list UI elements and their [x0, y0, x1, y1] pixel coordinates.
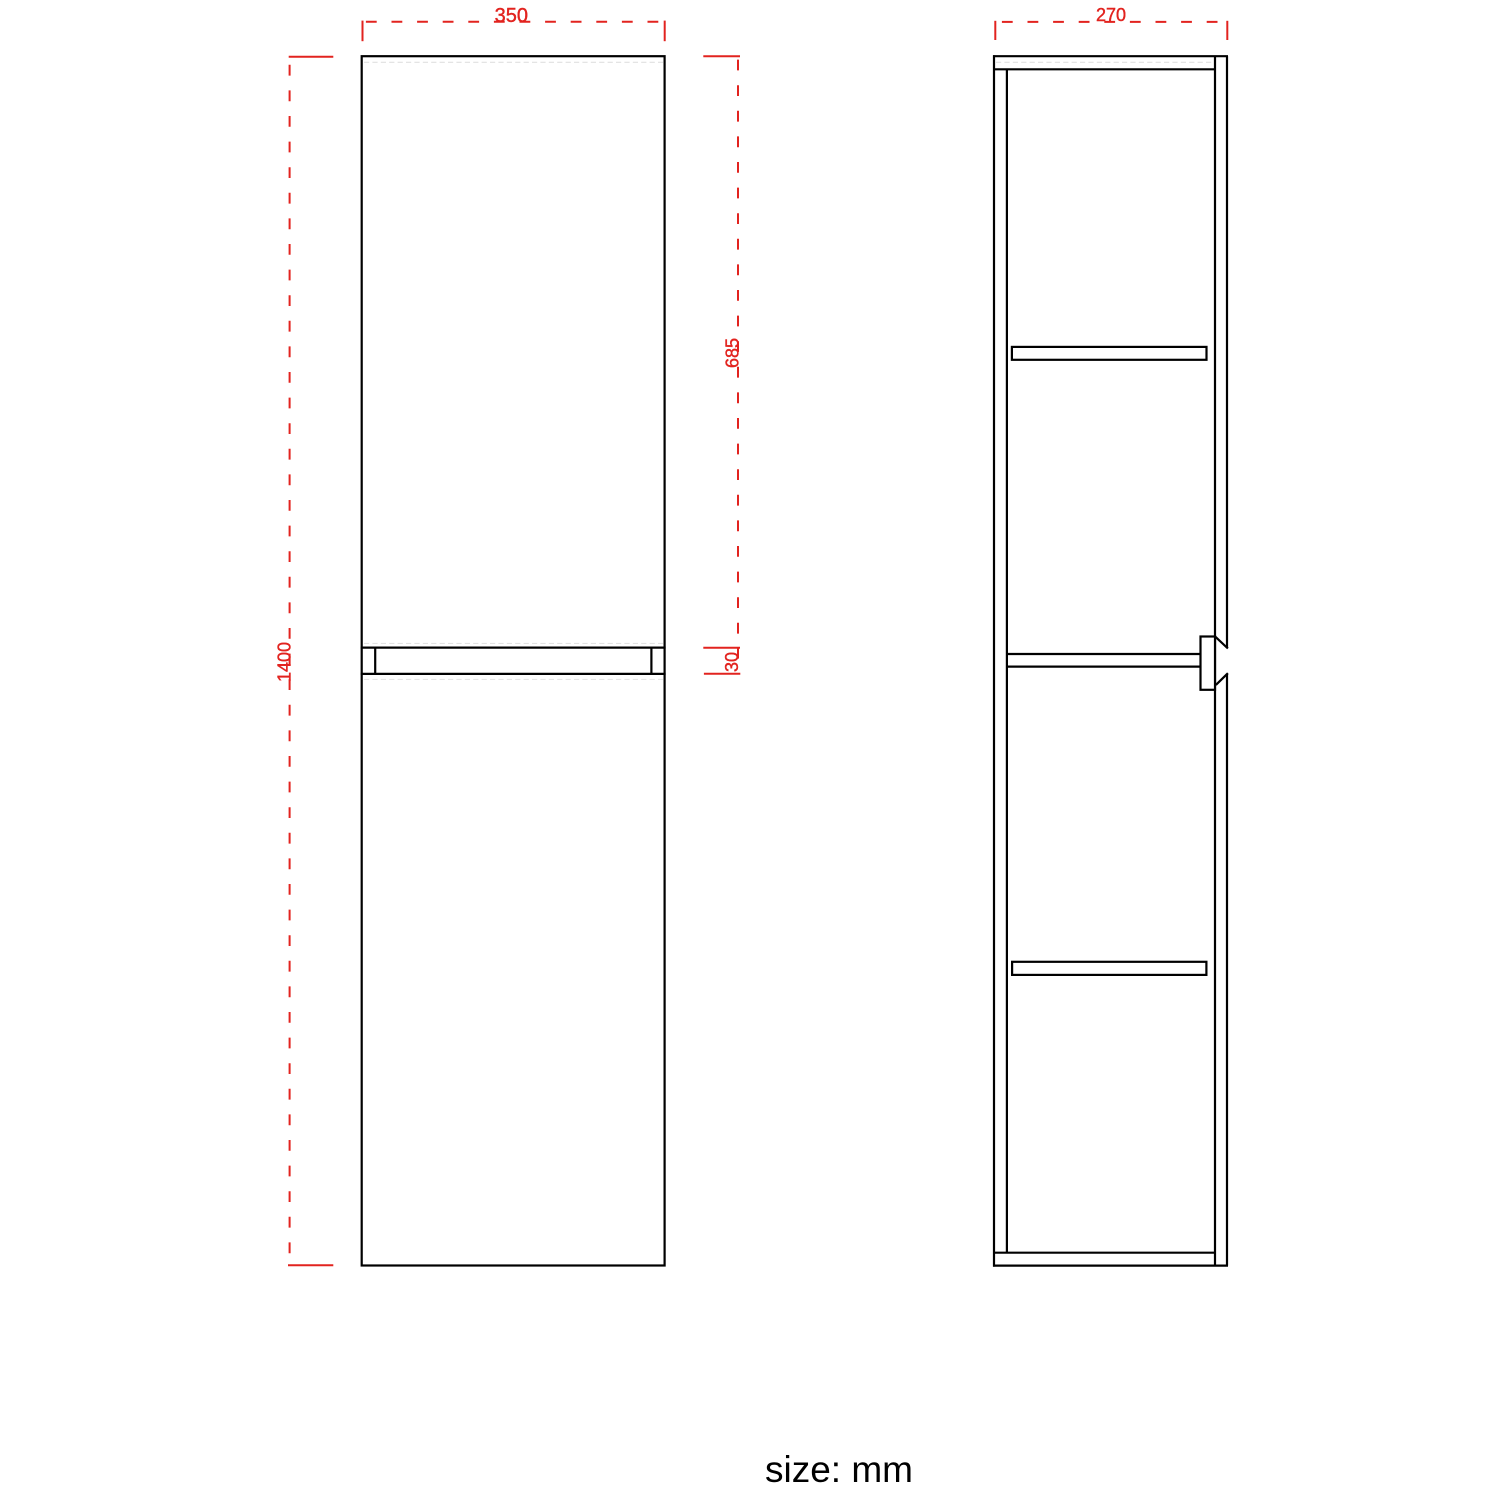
- svg-text:size: mm: size: mm: [765, 1449, 913, 1490]
- svg-text:270: 270: [1096, 5, 1126, 25]
- svg-text:1400: 1400: [275, 642, 295, 682]
- svg-text:30: 30: [722, 652, 742, 672]
- svg-text:685: 685: [723, 338, 743, 368]
- svg-text:350: 350: [495, 5, 528, 27]
